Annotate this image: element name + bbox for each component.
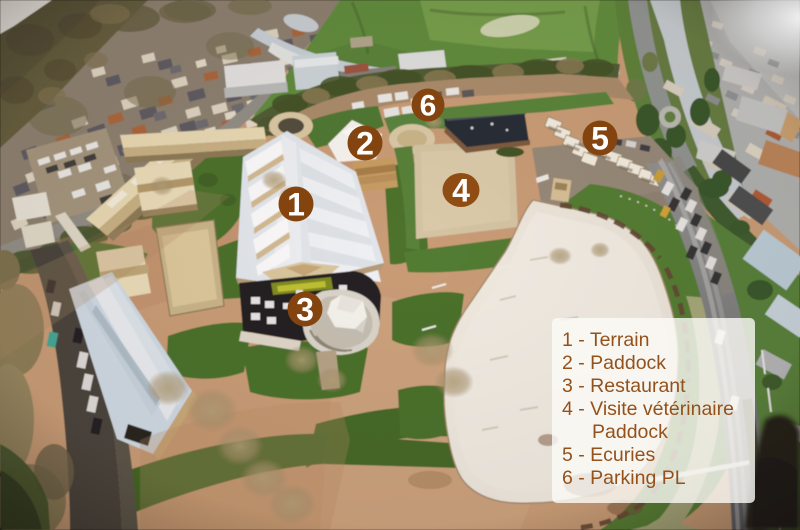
svg-text:1 - Terrain: 1 - Terrain	[562, 329, 649, 351]
svg-text:4 - Visite vétérinaire: 4 - Visite vétérinaire	[562, 398, 734, 420]
svg-text:4: 4	[452, 173, 470, 209]
svg-text:1: 1	[287, 187, 305, 223]
svg-text:Paddock: Paddock	[592, 421, 668, 443]
svg-text:3 - Restaurant: 3 - Restaurant	[562, 375, 686, 397]
svg-text:2: 2	[356, 126, 374, 162]
svg-text:6: 6	[420, 90, 437, 123]
svg-text:2 - Paddock: 2 - Paddock	[562, 352, 666, 374]
svg-text:3: 3	[296, 292, 314, 328]
svg-text:6 - Parking PL: 6 - Parking PL	[562, 467, 686, 489]
svg-text:5 - Ecuries: 5 - Ecuries	[562, 444, 655, 466]
svg-text:5: 5	[591, 121, 609, 157]
